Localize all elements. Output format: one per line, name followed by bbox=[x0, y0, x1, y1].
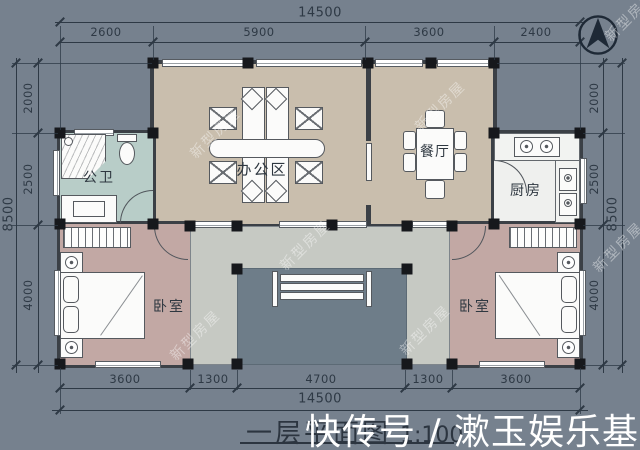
dim-line-top-segments bbox=[60, 42, 580, 43]
nightstand-lamp bbox=[65, 256, 78, 269]
dining-chair bbox=[454, 131, 467, 150]
floor-plan-canvas: 14500 2600 5900 3600 2400 3600 1300 4700… bbox=[0, 0, 640, 450]
dim-line-top-total bbox=[55, 22, 585, 23]
dim-top-seg-4: 2400 bbox=[520, 25, 551, 39]
office-stool bbox=[295, 161, 323, 184]
dim-line-right-segments bbox=[603, 58, 604, 373]
window bbox=[479, 361, 545, 368]
dim-left-seg-3: 4000 bbox=[21, 279, 35, 310]
column bbox=[232, 221, 243, 232]
column bbox=[232, 264, 243, 275]
vanity-basin bbox=[73, 201, 105, 217]
toilet bbox=[119, 142, 135, 165]
dim-left-total: 8500 bbox=[2, 196, 17, 231]
dim-right-total: 8500 bbox=[606, 196, 621, 231]
dim-bottom-seg-5: 3600 bbox=[500, 372, 531, 386]
dim-top-seg-1: 2600 bbox=[90, 25, 121, 39]
column bbox=[243, 58, 254, 69]
step-stringer-right bbox=[366, 271, 372, 307]
window bbox=[95, 361, 161, 368]
partition-wall bbox=[366, 63, 371, 141]
step-tread bbox=[280, 274, 364, 282]
label-bedroom-right: 卧室 bbox=[459, 296, 491, 316]
dim-top-seg-3: 3600 bbox=[413, 25, 444, 39]
office-stool bbox=[295, 107, 323, 130]
dim-right-seg-2: 2500 bbox=[587, 163, 601, 194]
dim-bottom-seg-2: 1300 bbox=[197, 372, 228, 386]
column bbox=[327, 220, 338, 231]
dining-chair bbox=[403, 153, 416, 172]
dim-left-seg-2: 2500 bbox=[21, 163, 35, 194]
column bbox=[232, 359, 243, 370]
dining-chair bbox=[425, 180, 445, 199]
dim-right-seg-3: 4000 bbox=[587, 279, 601, 310]
nightstand-lamp bbox=[562, 341, 575, 354]
office-stool bbox=[209, 161, 237, 184]
column bbox=[148, 219, 159, 230]
column bbox=[402, 359, 413, 370]
window bbox=[375, 59, 423, 67]
step-tread bbox=[280, 283, 364, 291]
column bbox=[402, 264, 413, 275]
wardrobe bbox=[509, 227, 577, 248]
label-office: 办公区 bbox=[236, 159, 287, 180]
watermark-footer: 快传号 / 漱玉娱乐基地 bbox=[305, 403, 640, 450]
window bbox=[53, 150, 60, 196]
dim-right-seg-1: 2000 bbox=[587, 82, 601, 113]
column bbox=[148, 128, 159, 139]
dining-chair bbox=[454, 153, 467, 172]
stove-burner bbox=[520, 140, 533, 153]
entry-door-band bbox=[279, 221, 367, 228]
dim-top-total: 14500 bbox=[298, 6, 342, 21]
dim-bottom-seg-1: 3600 bbox=[109, 372, 140, 386]
pillow bbox=[63, 306, 79, 333]
partition-door-leaf bbox=[366, 143, 372, 181]
column bbox=[575, 219, 586, 230]
column bbox=[447, 359, 458, 370]
extension-line bbox=[12, 63, 152, 64]
column bbox=[185, 221, 196, 232]
window bbox=[580, 158, 587, 204]
stove-burner bbox=[540, 140, 553, 153]
label-bathroom: 公卫 bbox=[83, 167, 115, 187]
window bbox=[412, 221, 450, 228]
label-kitchen: 厨房 bbox=[510, 180, 542, 200]
toilet-tank bbox=[117, 134, 137, 142]
dim-left-seg-1: 2000 bbox=[21, 82, 35, 113]
nightstand-lamp bbox=[562, 256, 575, 269]
column bbox=[426, 58, 437, 69]
column bbox=[55, 219, 66, 230]
sink-drain bbox=[564, 174, 572, 182]
dim-bottom-seg-4: 1300 bbox=[412, 372, 443, 386]
pillow bbox=[63, 276, 79, 303]
dim-line-bottom-segments bbox=[60, 388, 580, 389]
column bbox=[183, 359, 194, 370]
nightstand-lamp bbox=[65, 341, 78, 354]
extension-line bbox=[497, 63, 625, 64]
dining-chair bbox=[425, 110, 445, 128]
column bbox=[489, 219, 500, 230]
pillow bbox=[561, 276, 577, 303]
office-meeting-table bbox=[209, 139, 325, 158]
column bbox=[489, 128, 500, 139]
north-arrow-icon bbox=[577, 14, 619, 56]
window bbox=[437, 59, 489, 67]
label-bedroom-left: 卧室 bbox=[153, 296, 185, 316]
dim-line-left-segments bbox=[38, 58, 39, 373]
dining-chair bbox=[403, 131, 416, 150]
wardrobe bbox=[63, 227, 131, 248]
pillow bbox=[561, 306, 577, 333]
window bbox=[194, 221, 236, 228]
dim-line-right-total bbox=[622, 58, 623, 373]
window bbox=[579, 270, 586, 336]
window bbox=[162, 59, 244, 67]
step-tread bbox=[280, 292, 364, 300]
step-stringer-left bbox=[272, 271, 278, 307]
dim-bottom-seg-3: 4700 bbox=[305, 372, 336, 386]
sink-drain bbox=[564, 199, 572, 207]
dim-top-seg-2: 5900 bbox=[243, 25, 274, 39]
column bbox=[402, 221, 413, 232]
window bbox=[256, 59, 362, 67]
column bbox=[447, 221, 458, 232]
office-stool bbox=[209, 107, 237, 130]
label-dining: 餐厅 bbox=[420, 141, 450, 161]
